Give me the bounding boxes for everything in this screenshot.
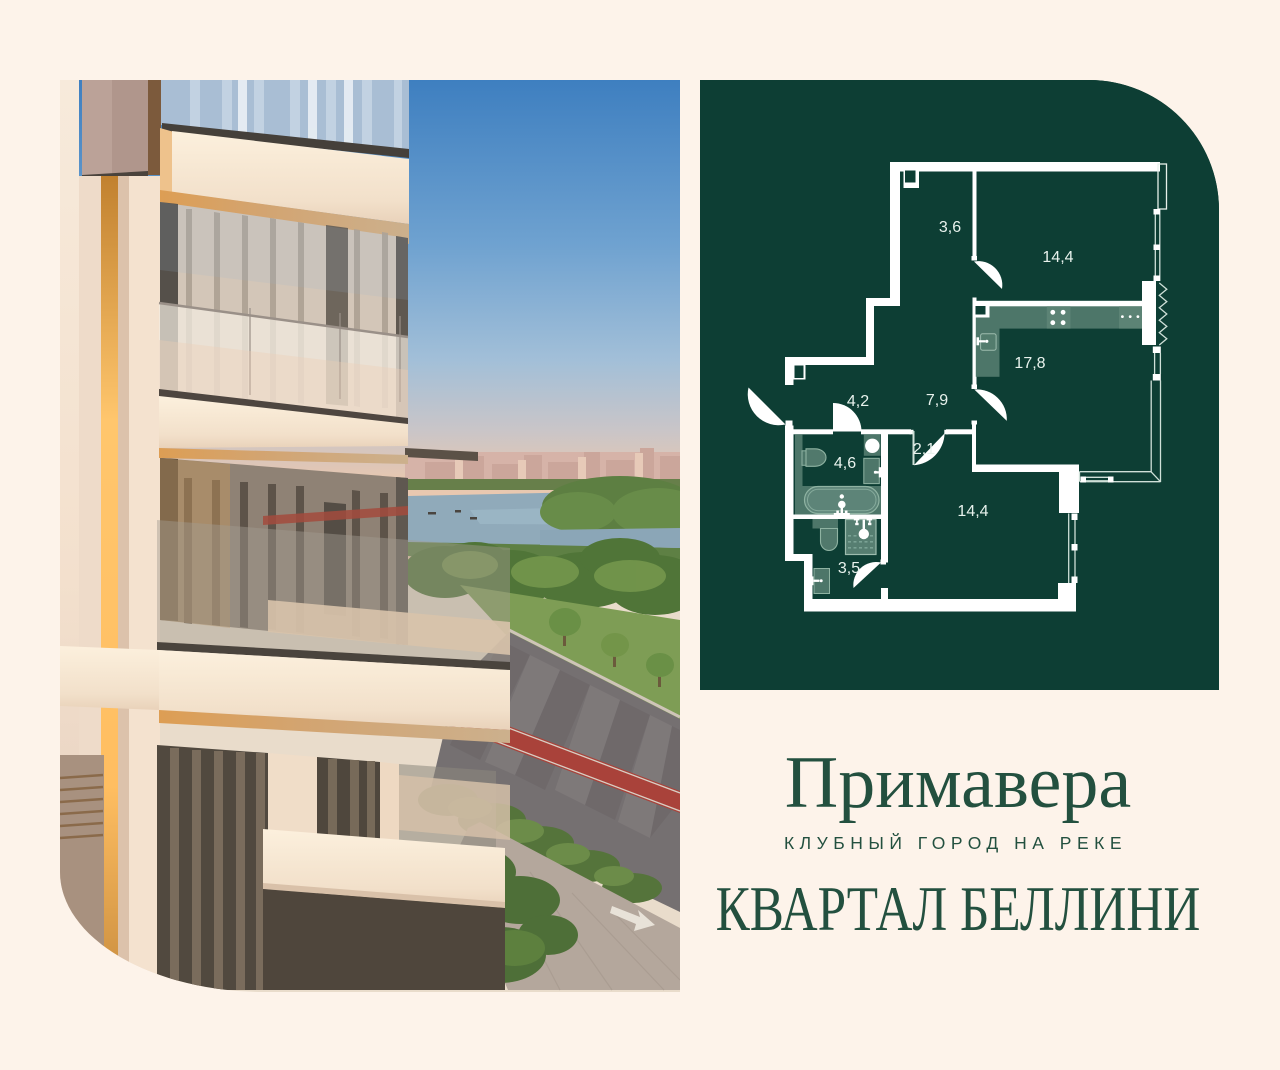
svg-text:14,4: 14,4 <box>957 503 988 520</box>
svg-text:2,1: 2,1 <box>913 441 935 458</box>
svg-text:7,9: 7,9 <box>926 392 948 409</box>
svg-text:17,8: 17,8 <box>1014 355 1045 372</box>
svg-text:3,6: 3,6 <box>939 219 961 236</box>
svg-text:4,2: 4,2 <box>847 393 869 410</box>
svg-text:14,4: 14,4 <box>1042 249 1073 266</box>
svg-text:4,6: 4,6 <box>834 455 856 472</box>
svg-text:3,5: 3,5 <box>838 560 860 577</box>
